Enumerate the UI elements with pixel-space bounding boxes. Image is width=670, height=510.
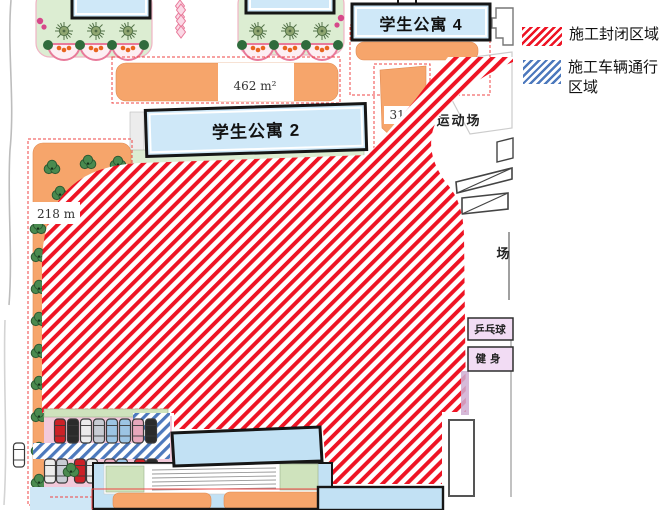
closed-area-label: 施工封闭区域 (569, 25, 659, 45)
legend-item-closed-area: 施工封闭区域 (522, 25, 659, 46)
bottom-right-building (318, 487, 443, 510)
vehicle-area-label-line2: 区域 (568, 78, 658, 98)
vehicle-area-label: 施工车辆通行 区域 (568, 58, 658, 98)
vehicle-area-label-line1: 施工车辆通行 (568, 58, 658, 78)
area-218-label: 218 m (37, 207, 76, 221)
garden-chain-mid (177, 4, 186, 38)
closed-area-swatch (522, 27, 562, 46)
field-char-label: 场 (496, 246, 511, 261)
road-edge-lines (4, 0, 12, 505)
outline-structure-bottomright (449, 420, 474, 496)
activity-boxes: 乒乓球 健身 (461, 318, 513, 415)
area-462-band: 462 m² (112, 57, 340, 103)
legend-item-vehicle-area: 施工车辆通行 区域 (523, 58, 658, 98)
center-building (172, 427, 322, 466)
apartment4-label: 学生公寓 4 (379, 15, 462, 34)
apartment2-label: 学生公寓 2 (212, 120, 301, 143)
site-plan-screenshot: 学生公寓 4 462 m² 313 学生公寓 2 运动场 场 (0, 0, 670, 510)
garden-block-2 (237, 0, 344, 60)
outline-structure-topright (492, 8, 513, 45)
fitness-label: 健身 (476, 352, 505, 365)
area-218-label-box: 218 m (32, 202, 80, 224)
vehicle-area-swatch (523, 60, 561, 84)
garden-block-1 (36, 0, 185, 60)
pingpong-label: 乒乓球 (474, 323, 506, 336)
road-car (14, 443, 25, 467)
site-plan-map: 学生公寓 4 462 m² 313 学生公寓 2 运动场 场 (0, 0, 514, 510)
sports-field-label: 运动场 (436, 113, 481, 128)
area-462-label: 462 m² (234, 79, 277, 93)
